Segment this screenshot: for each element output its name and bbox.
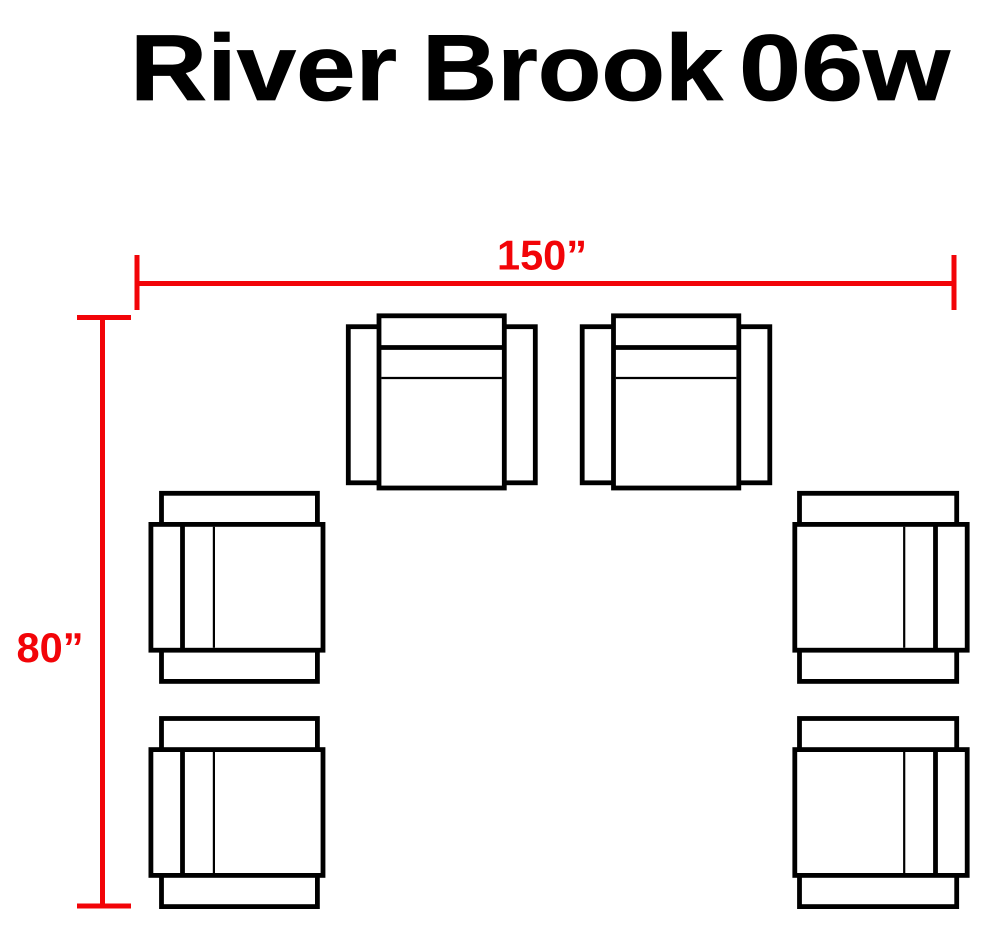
svg-text:Brook: Brook [422,15,724,120]
svg-text:150”: 150” [497,232,587,279]
svg-text:River: River [130,15,397,120]
svg-text:80”: 80” [17,624,84,671]
svg-text:06w: 06w [739,15,951,120]
